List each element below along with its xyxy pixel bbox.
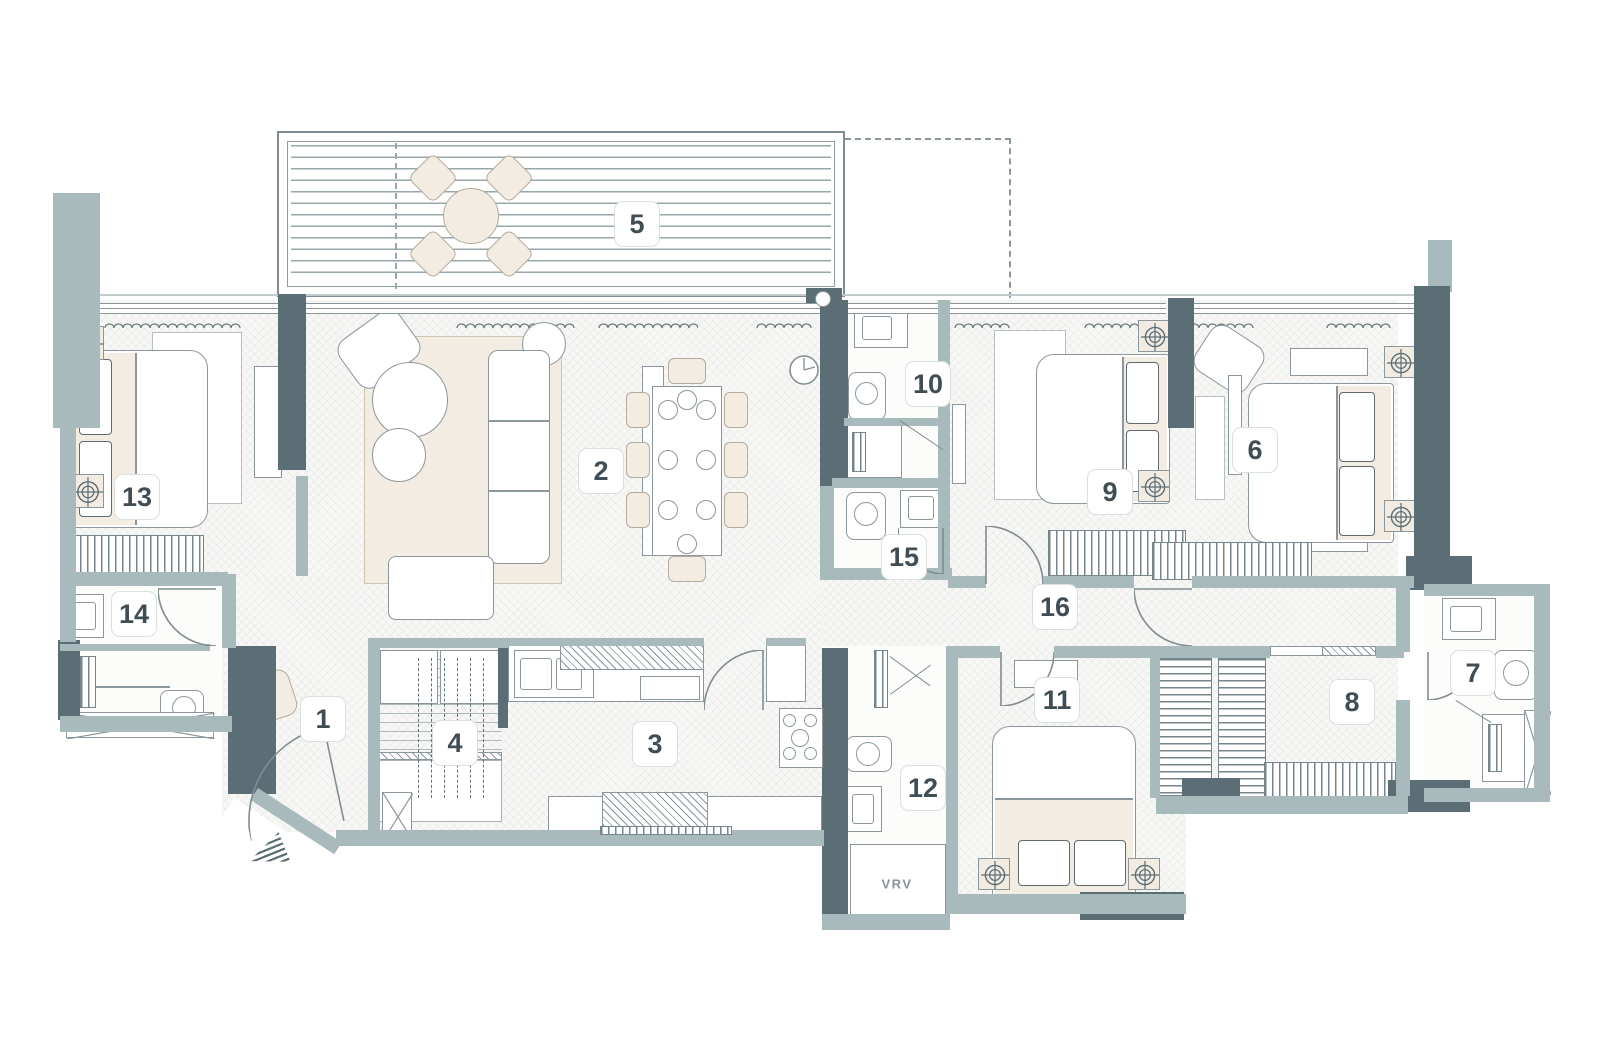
pillow	[1126, 362, 1159, 424]
wall-segment	[368, 638, 380, 834]
dining-chair	[724, 492, 748, 528]
burner	[804, 747, 817, 760]
pillow	[1339, 392, 1375, 462]
wall-segment	[508, 638, 704, 646]
sink-basin	[74, 602, 96, 630]
floor-plan: VRV 1 2 3 4 5 6 7 8 9 10 11 12 13 14 15 …	[0, 0, 1600, 1045]
ceiling-spot-light-icon	[1128, 858, 1160, 890]
wall-segment	[832, 478, 950, 488]
bed-11-fold-line	[995, 798, 1133, 800]
place-setting	[658, 450, 678, 470]
deck-floorboards	[291, 145, 831, 283]
kitchen-cabinet	[640, 676, 700, 700]
window-living	[306, 303, 820, 314]
towel-radiator	[874, 650, 888, 708]
wall-segment	[822, 648, 848, 920]
wall-segment	[948, 576, 986, 588]
sofa-cushion-line	[489, 490, 549, 492]
coffee-table-small	[372, 428, 426, 482]
console	[952, 404, 966, 484]
wall-segment	[822, 914, 950, 930]
sink-basin	[908, 496, 934, 520]
toilet-bowl	[856, 742, 880, 766]
sink-basin	[862, 316, 892, 340]
room-label-2: 2	[578, 448, 624, 494]
wall-segment	[60, 572, 228, 586]
curtain-squiggle-icon	[756, 319, 812, 333]
shelf	[380, 650, 438, 704]
place-setting	[696, 400, 716, 420]
ceiling-spot-light-icon	[1138, 320, 1170, 352]
drying-rack-line	[483, 658, 484, 798]
deck-table	[443, 188, 499, 244]
room-label-6: 6	[1232, 427, 1278, 473]
sink-basin	[852, 794, 874, 824]
door-swing-icon	[231, 727, 345, 841]
toilet-bowl	[854, 502, 878, 526]
burner-center	[791, 729, 809, 747]
wall-segment	[1396, 588, 1410, 652]
vrv-label: VRV	[882, 877, 913, 892]
wall-segment	[1168, 298, 1194, 428]
dining-chair	[668, 358, 706, 384]
curtain-squiggle-icon	[598, 319, 698, 333]
sofa-chaise	[388, 556, 494, 620]
wall-segment	[766, 638, 806, 646]
dining-chair	[724, 392, 748, 428]
room-label-11: 11	[1034, 677, 1080, 723]
room-label-7: 7	[1450, 650, 1496, 696]
ceiling-spot-light-icon	[1138, 470, 1170, 502]
wall-clock-icon	[788, 354, 820, 386]
wall-segment	[372, 638, 508, 648]
place-setting	[677, 534, 697, 554]
wall-segment	[1424, 788, 1550, 802]
dining-chair	[626, 442, 650, 478]
wall-segment	[1396, 700, 1410, 796]
pillow	[1074, 840, 1126, 886]
towel-radiator	[80, 656, 96, 708]
dining-chair	[724, 442, 748, 478]
wall-segment	[1054, 646, 1270, 658]
curtain-squiggle-icon	[104, 319, 244, 333]
room-label-1: 1	[300, 696, 346, 742]
bed-6-fold-line	[1336, 386, 1338, 540]
pillow	[1018, 840, 1070, 886]
coffee-table	[372, 362, 448, 438]
deck-divider-dashed	[395, 143, 397, 289]
open-to-sky-dashed-boundary	[845, 138, 1011, 298]
wall-segment	[1150, 658, 1160, 798]
kitchen-cabinet	[766, 644, 806, 702]
wall-segment	[1424, 584, 1546, 596]
closet-shelves	[1158, 658, 1212, 796]
drying-rack-line	[418, 658, 419, 798]
burner	[783, 714, 796, 727]
wall-segment	[820, 486, 834, 580]
floor-corridor	[822, 578, 948, 646]
wall-segment	[844, 418, 950, 426]
wall-segment	[946, 646, 958, 896]
closet-hall	[1152, 542, 1312, 580]
wall-segment	[1156, 796, 1408, 814]
place-setting	[696, 450, 716, 470]
wall-segment	[498, 648, 508, 728]
burner	[783, 747, 796, 760]
window-bed9	[848, 303, 1166, 314]
room-label-5: 5	[614, 201, 660, 247]
rug	[1195, 396, 1225, 500]
place-setting	[677, 390, 697, 410]
room-label-13: 13	[114, 474, 160, 520]
wall-segment	[946, 894, 1186, 914]
room-label-12: 12	[900, 765, 946, 811]
room-label-15: 15	[881, 534, 927, 580]
ceiling-spot-light-icon	[978, 858, 1010, 890]
towel-radiator	[852, 432, 866, 472]
place-setting	[658, 500, 678, 520]
sofa	[488, 350, 550, 564]
wall-segment	[1414, 286, 1450, 558]
side-table	[1290, 348, 1368, 376]
curtain-squiggle-icon	[1326, 319, 1396, 333]
grill-vent	[600, 826, 732, 835]
counter-hatch	[560, 644, 704, 670]
sliding-door-hatch	[1322, 646, 1376, 656]
place-setting	[696, 500, 716, 520]
sink-basin	[520, 658, 552, 690]
room-label-4: 4	[432, 720, 478, 766]
wall-segment	[53, 193, 100, 428]
room-label-9: 9	[1087, 469, 1133, 515]
dining-chair	[626, 492, 650, 528]
towel-radiator	[1488, 724, 1502, 772]
dining-chair	[668, 556, 706, 582]
room-label-14: 14	[111, 591, 157, 637]
wall-segment	[58, 640, 80, 720]
dining-chair	[626, 392, 650, 428]
ceiling-spot-light-icon	[1384, 500, 1416, 532]
pillow	[1339, 466, 1375, 536]
sink-basin	[1450, 606, 1482, 632]
window-bed6	[1194, 303, 1414, 314]
wall-segment	[336, 830, 824, 846]
wall-segment	[1428, 240, 1452, 292]
toilet-bowl	[855, 382, 878, 405]
door-swing-icon	[158, 588, 216, 646]
wall-segment	[1192, 576, 1414, 588]
wall-segment	[60, 420, 76, 642]
burner	[804, 714, 817, 727]
wall-segment	[278, 294, 306, 470]
place-setting	[658, 400, 678, 420]
wall-segment	[296, 476, 308, 576]
toilet-bowl	[1503, 660, 1529, 686]
room-label-8: 8	[1329, 679, 1375, 725]
room-label-16: 16	[1032, 584, 1078, 630]
room-label-3: 3	[632, 721, 678, 767]
room-label-10: 10	[905, 361, 951, 407]
deck-drain	[815, 291, 831, 307]
wall-segment	[60, 716, 232, 732]
door-swing-icon	[985, 526, 1043, 584]
door-swing-icon	[1134, 588, 1192, 646]
door-swing-icon	[704, 650, 764, 710]
wall-segment	[820, 300, 848, 488]
wall-segment	[1534, 584, 1550, 802]
ceiling-spot-light-icon	[1384, 346, 1416, 378]
sofa-cushion-line	[489, 420, 549, 422]
